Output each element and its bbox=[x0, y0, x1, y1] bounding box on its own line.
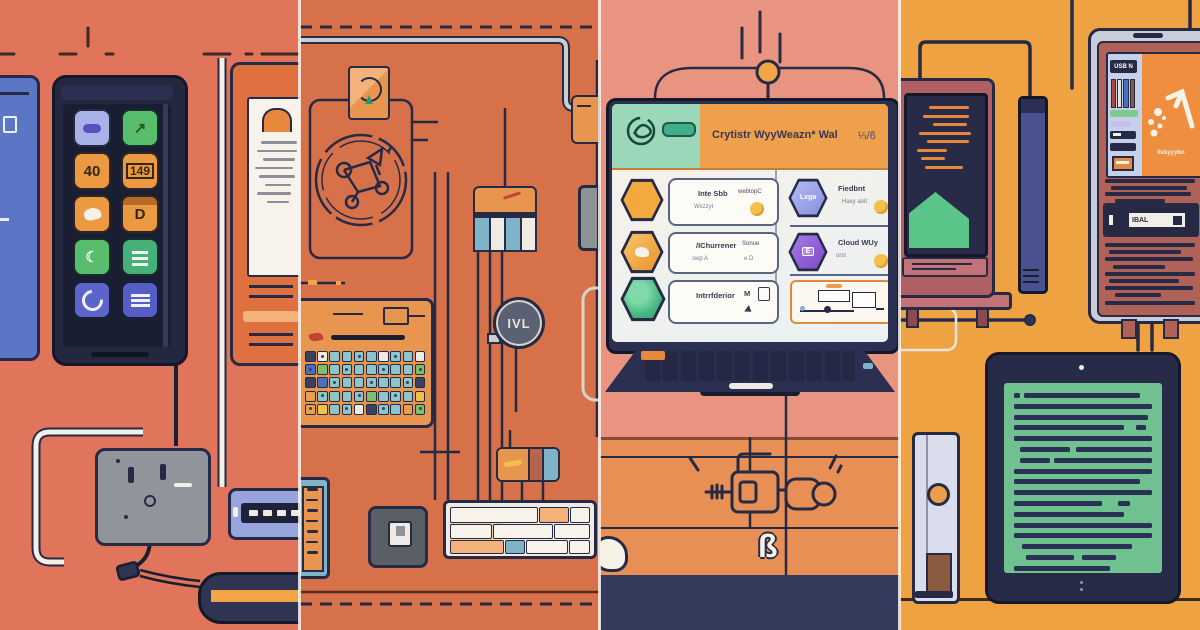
dashboard-card[interactable]: Inte Sbb Wxzzyt webtopC bbox=[668, 178, 779, 226]
edge-list-card bbox=[300, 477, 330, 579]
outlet-slot bbox=[128, 467, 134, 483]
titlebar-pill-button[interactable] bbox=[662, 122, 696, 137]
keypad-key[interactable] bbox=[403, 404, 414, 415]
e-reader-tablet bbox=[985, 352, 1181, 604]
panel-phone-desk: ↗40149D☾ bbox=[0, 0, 300, 630]
card-title: Intrrfderior bbox=[696, 291, 735, 300]
cassette-app-icon[interactable] bbox=[73, 109, 111, 147]
vent-line bbox=[249, 343, 293, 346]
panel-separator bbox=[898, 0, 901, 630]
text-line bbox=[1014, 425, 1124, 430]
keypad-key[interactable] bbox=[366, 351, 377, 362]
tablet-leg bbox=[1121, 319, 1137, 339]
text-line bbox=[1014, 523, 1152, 528]
component-body bbox=[498, 449, 528, 480]
keypad-key[interactable] bbox=[378, 351, 389, 362]
text-line bbox=[1014, 436, 1152, 441]
port bbox=[263, 510, 272, 516]
card-title: Inte Sbb bbox=[698, 189, 728, 198]
sketch-line bbox=[333, 313, 363, 315]
mini-monitor-box bbox=[368, 506, 428, 568]
card-right-label: M bbox=[744, 289, 750, 298]
phone-speaker-bar bbox=[61, 85, 173, 100]
edge-list-lines bbox=[302, 486, 324, 572]
text-line bbox=[1115, 293, 1161, 297]
screen-edge-highlight bbox=[163, 104, 168, 347]
text-line bbox=[307, 488, 318, 491]
cursor-icon bbox=[744, 305, 754, 315]
trackpad-notch bbox=[729, 383, 773, 389]
keypad-key[interactable] bbox=[403, 351, 414, 362]
text-line bbox=[1020, 458, 1050, 463]
drive-label-block bbox=[1173, 216, 1182, 225]
moon-app-icon[interactable]: ☾ bbox=[73, 238, 111, 276]
book-spine bbox=[1117, 79, 1122, 108]
text-line bbox=[1022, 544, 1132, 549]
keypad-key[interactable] bbox=[329, 364, 340, 375]
flat-keyboard bbox=[443, 500, 597, 559]
keypad-key[interactable] bbox=[366, 364, 377, 375]
schem-dot bbox=[800, 306, 805, 311]
text-line bbox=[261, 141, 297, 144]
text-line bbox=[1082, 555, 1116, 560]
text-line bbox=[306, 520, 318, 523]
keypad-key[interactable] bbox=[378, 364, 389, 375]
text-line bbox=[927, 140, 969, 143]
app-icon-glyph: ☾ bbox=[85, 250, 98, 265]
text-line bbox=[1076, 447, 1152, 452]
text-line bbox=[265, 184, 291, 187]
keypad-key[interactable] bbox=[354, 351, 365, 362]
text-line bbox=[1136, 425, 1146, 430]
text-line bbox=[1105, 301, 1195, 305]
text-line bbox=[1118, 501, 1130, 506]
text-line bbox=[257, 150, 297, 153]
book-spine bbox=[1123, 79, 1129, 108]
text-line bbox=[307, 530, 318, 533]
dashboard-card[interactable]: Intrrfderior M bbox=[668, 280, 779, 324]
hex-badge: E bbox=[802, 247, 815, 256]
edge-gray-component bbox=[578, 185, 600, 251]
text-line bbox=[1020, 447, 1070, 452]
port bbox=[249, 510, 258, 516]
power-bank bbox=[198, 572, 300, 624]
power-strip bbox=[228, 488, 300, 540]
terminal-text-lines bbox=[917, 106, 975, 186]
keypad-key[interactable] bbox=[390, 351, 401, 362]
text-line bbox=[1105, 286, 1193, 290]
sd-card-icon bbox=[1112, 156, 1134, 171]
hex-icon-orange bbox=[620, 178, 664, 222]
key bbox=[569, 540, 590, 554]
desk-monitor bbox=[230, 62, 300, 366]
document-arch-shape bbox=[262, 108, 292, 132]
panel-circuit-diagram: IVL bbox=[300, 0, 600, 630]
dove-app-icon[interactable] bbox=[73, 195, 111, 233]
card-right-sub: e D bbox=[744, 256, 753, 262]
retro-monitor-screen bbox=[904, 93, 988, 257]
schem-dash bbox=[876, 308, 884, 310]
base-line bbox=[912, 268, 956, 270]
text-line bbox=[1014, 501, 1102, 506]
menu-dash-mark bbox=[1113, 133, 1121, 136]
edge-card bbox=[571, 95, 600, 144]
tablet-main-area: Ilxkyyybo bbox=[1142, 54, 1200, 176]
antenna-doodle bbox=[655, 12, 884, 98]
text-line bbox=[1105, 179, 1195, 183]
deck-teal-chip bbox=[863, 363, 873, 369]
keypad-key[interactable] bbox=[366, 377, 377, 388]
text-line bbox=[1109, 250, 1181, 254]
keypad-key[interactable] bbox=[415, 404, 426, 415]
gray-cable bbox=[300, 40, 586, 108]
progress-strip bbox=[1110, 110, 1138, 117]
page-text-lines bbox=[1014, 393, 1152, 563]
memo-app-icon[interactable] bbox=[121, 238, 159, 276]
keypad-key[interactable] bbox=[415, 351, 426, 362]
text-line bbox=[921, 157, 945, 160]
component-cap bbox=[542, 449, 558, 480]
text-line bbox=[255, 167, 293, 170]
keypad-key[interactable] bbox=[403, 364, 414, 375]
app-icon-glyph: D bbox=[135, 207, 146, 222]
key bbox=[554, 524, 590, 539]
docked-tablet: Ilxkyyybo USB N IBAL bbox=[1088, 28, 1200, 324]
d-app-icon[interactable]: D bbox=[121, 195, 159, 233]
menu-dash[interactable] bbox=[1110, 143, 1136, 151]
route-app-icon[interactable]: ↗ bbox=[121, 109, 159, 147]
sketch-thick-line bbox=[331, 335, 405, 340]
text-line bbox=[1014, 512, 1124, 517]
app-title-meta: ⅓/ϐ bbox=[857, 130, 876, 142]
keypad-key[interactable] bbox=[354, 364, 365, 375]
cabinet-seam bbox=[0, 92, 29, 95]
stylus-groove bbox=[1023, 275, 1039, 277]
framed-chip-card bbox=[348, 66, 390, 120]
text-line bbox=[1014, 479, 1140, 484]
usb-badge: USB N bbox=[1110, 60, 1137, 73]
keypad-key[interactable] bbox=[415, 391, 426, 402]
book-spine bbox=[1111, 79, 1116, 108]
key bbox=[493, 524, 553, 539]
stylus-pen bbox=[1018, 96, 1048, 294]
tablet-body: Ilxkyyybo USB N IBAL bbox=[1097, 41, 1200, 317]
card-subtitle: orst bbox=[836, 253, 846, 259]
front-panel-strip bbox=[600, 575, 900, 630]
keypad-keys bbox=[305, 351, 427, 419]
drive-bay: IBAL bbox=[1103, 203, 1199, 237]
keypad-key[interactable] bbox=[354, 391, 365, 402]
card-subtitle: Wxzzyt bbox=[694, 204, 713, 210]
adapter-screw bbox=[116, 459, 120, 463]
scatter-logo bbox=[1142, 54, 1200, 176]
keypad-key[interactable] bbox=[342, 377, 353, 388]
gauge-40-app-icon[interactable]: 40 bbox=[73, 152, 111, 190]
document-text-lines bbox=[255, 141, 297, 261]
text-line bbox=[1014, 490, 1152, 495]
desk-monitor-screen bbox=[247, 97, 300, 277]
home-dot bbox=[1080, 588, 1083, 591]
power-adapter bbox=[95, 448, 211, 546]
list-app-icon[interactable] bbox=[121, 281, 159, 319]
tablet-logo-text: Ilxkyyybo bbox=[1142, 150, 1200, 156]
keypad-key[interactable] bbox=[366, 404, 377, 415]
text-line bbox=[929, 106, 969, 109]
sketch-line bbox=[409, 315, 425, 317]
keypad-key[interactable] bbox=[317, 377, 328, 388]
keypad-key[interactable] bbox=[317, 404, 328, 415]
keypad-key[interactable] bbox=[390, 377, 401, 388]
component-scribble bbox=[504, 460, 523, 467]
text-line bbox=[1014, 533, 1152, 538]
schematic-card[interactable] bbox=[790, 280, 888, 324]
phone-screen: ↗40149D☾ bbox=[63, 104, 171, 347]
tablet-speaker bbox=[1133, 33, 1163, 38]
keypad-key[interactable] bbox=[329, 391, 340, 402]
key bbox=[450, 524, 492, 539]
vent-bars bbox=[1105, 243, 1200, 309]
panel-separator bbox=[298, 0, 301, 630]
keypad-key[interactable] bbox=[378, 404, 389, 415]
monitor-base-bar bbox=[243, 311, 299, 322]
cabinet-dash bbox=[0, 218, 9, 221]
text-line bbox=[306, 499, 318, 502]
text-line bbox=[1026, 555, 1074, 560]
keypad-key[interactable] bbox=[354, 404, 365, 415]
keypad-key[interactable] bbox=[305, 404, 316, 415]
key bbox=[570, 507, 590, 523]
mini-monitor-screen bbox=[388, 521, 412, 547]
dashed-guides bbox=[0, 28, 300, 54]
adapter-label bbox=[174, 483, 192, 487]
phone-home-groove bbox=[91, 352, 149, 357]
card-title: /IChurrener bbox=[696, 241, 736, 250]
key bbox=[539, 507, 569, 523]
text-line bbox=[263, 158, 295, 161]
card-subtitle: swp A bbox=[692, 256, 708, 262]
chip-mark bbox=[503, 191, 521, 199]
text-line bbox=[1014, 404, 1152, 409]
adapter-screw bbox=[124, 515, 128, 519]
keypad-key[interactable] bbox=[366, 391, 377, 402]
dock-brown-block bbox=[926, 553, 952, 595]
keypad-key[interactable] bbox=[342, 404, 353, 415]
keypad-key[interactable] bbox=[305, 364, 316, 375]
hex-icon-bird bbox=[620, 230, 664, 274]
tablet-screen: Ilxkyyybo USB N bbox=[1106, 52, 1200, 178]
schem-block bbox=[818, 290, 850, 302]
keypad-key[interactable] bbox=[390, 364, 401, 375]
row-divider bbox=[790, 225, 888, 227]
base-line bbox=[912, 263, 972, 265]
schem-tab bbox=[826, 284, 842, 288]
keypad-key[interactable] bbox=[305, 391, 316, 402]
hex-icon-green-cube bbox=[620, 276, 666, 322]
keypad-key[interactable] bbox=[342, 351, 353, 362]
key bbox=[505, 540, 525, 554]
keypad-key[interactable] bbox=[329, 351, 340, 362]
vent-line bbox=[249, 333, 293, 336]
deck-orange-chip bbox=[641, 351, 665, 360]
text-line bbox=[1113, 265, 1165, 269]
keypad-key[interactable] bbox=[342, 391, 353, 402]
card-right-label: Sonue bbox=[742, 241, 759, 247]
vent-line bbox=[249, 295, 293, 298]
laptop-screen: Crytistr WyyWeazn* Wal ⅓/ϐ Inte Sbb Wxzz… bbox=[612, 104, 888, 342]
app-icon-glyph: 149 bbox=[126, 163, 154, 179]
text-line bbox=[923, 115, 969, 118]
keypad-key[interactable] bbox=[354, 377, 365, 388]
text-line bbox=[925, 166, 963, 169]
connector-chip-top bbox=[473, 186, 537, 214]
keypad-key[interactable] bbox=[317, 364, 328, 375]
key bbox=[450, 507, 538, 523]
tablet-leg bbox=[1163, 319, 1179, 339]
text-line bbox=[917, 149, 947, 152]
status-dot bbox=[750, 202, 764, 216]
dock-foot bbox=[915, 591, 953, 598]
home-dot bbox=[1080, 581, 1083, 584]
text-line bbox=[1105, 192, 1191, 196]
keypad-key[interactable] bbox=[305, 377, 316, 388]
number-149-app-icon[interactable]: 149 bbox=[121, 152, 159, 190]
menu-dash[interactable] bbox=[1110, 131, 1136, 139]
keypad-key[interactable] bbox=[390, 391, 401, 402]
retro-monitor bbox=[900, 78, 995, 298]
cable-connector-bead bbox=[117, 562, 140, 580]
panel-separator bbox=[598, 0, 601, 630]
dock-button[interactable] bbox=[927, 483, 950, 506]
leaf-mark bbox=[365, 95, 373, 104]
text-line bbox=[1105, 272, 1195, 276]
app-icon-glyph: ↗ bbox=[134, 121, 147, 136]
key bbox=[526, 540, 568, 554]
status-dot bbox=[874, 254, 888, 268]
edge-card-line bbox=[577, 105, 591, 107]
sd-card-label bbox=[1116, 161, 1129, 164]
row-divider bbox=[790, 274, 888, 276]
keypad-key[interactable] bbox=[329, 404, 340, 415]
schem-slider-knob[interactable] bbox=[824, 306, 831, 313]
text-line bbox=[257, 192, 291, 195]
cable-bead bbox=[1025, 315, 1035, 325]
power-bank-stripe bbox=[211, 590, 300, 602]
text-line bbox=[919, 132, 971, 135]
component-band bbox=[528, 449, 542, 480]
keypad-key[interactable] bbox=[378, 391, 389, 402]
bird-mark bbox=[635, 247, 649, 257]
text-line bbox=[306, 541, 318, 544]
keypad-key[interactable] bbox=[403, 391, 414, 402]
text-line bbox=[1105, 243, 1195, 247]
outlet-slot bbox=[160, 464, 166, 480]
power-strip-ports bbox=[241, 503, 300, 523]
text-line bbox=[1014, 393, 1020, 398]
keypad-key[interactable] bbox=[305, 351, 316, 362]
molecule-doodle bbox=[316, 135, 406, 225]
connector-chip-pins bbox=[473, 214, 537, 252]
dashboard-card[interactable]: /IChurrener swp A Sonue e D bbox=[668, 232, 779, 274]
keypad-key[interactable] bbox=[317, 391, 328, 402]
card-subtitle: Haxy aoit bbox=[842, 199, 867, 205]
keypad-key[interactable] bbox=[329, 377, 340, 388]
port bbox=[277, 510, 286, 516]
text-line bbox=[307, 551, 318, 554]
stylus-cap bbox=[1021, 99, 1045, 113]
swirl-app-icon[interactable] bbox=[73, 281, 111, 319]
panel-workstation: Ilxkyyybo USB N IBAL bbox=[900, 0, 1200, 630]
keypad-key[interactable] bbox=[378, 377, 389, 388]
sketch-scribble bbox=[308, 332, 323, 343]
adapter-ground-hole bbox=[144, 495, 156, 507]
phone-app-grid: ↗40149D☾ bbox=[63, 104, 171, 347]
keypad-key[interactable] bbox=[415, 364, 426, 375]
laptop-keyboard-deck bbox=[605, 345, 895, 392]
text-line bbox=[1024, 393, 1140, 398]
brand-swirl-icon bbox=[624, 114, 664, 154]
sketch-box bbox=[383, 307, 409, 325]
text-line bbox=[267, 201, 289, 204]
round-module: IVL bbox=[493, 297, 545, 349]
text-line bbox=[259, 175, 295, 178]
vent-bars bbox=[1105, 179, 1200, 201]
text-line bbox=[1054, 458, 1152, 463]
lavender-dash bbox=[1111, 121, 1131, 127]
orange-tick bbox=[336, 281, 341, 285]
stylus-groove bbox=[1023, 281, 1039, 283]
keypad-key[interactable] bbox=[390, 404, 401, 415]
text-line bbox=[1014, 469, 1152, 474]
smartphone: ↗40149D☾ bbox=[52, 75, 188, 366]
app-title: Crytistr WyyWeazn* Wal bbox=[712, 129, 838, 141]
keypad-key[interactable] bbox=[317, 351, 328, 362]
schem-block bbox=[852, 292, 876, 308]
text-line bbox=[1014, 415, 1148, 420]
vent-line bbox=[249, 285, 293, 288]
keypad-key[interactable] bbox=[342, 364, 353, 375]
antenna-node bbox=[757, 61, 779, 83]
text-line bbox=[1014, 566, 1110, 571]
hex-icon-purple: E bbox=[788, 232, 828, 272]
blue-cabinet-device bbox=[0, 75, 40, 361]
card-title: Fiedbnt bbox=[838, 184, 865, 193]
file-icon bbox=[758, 287, 770, 301]
text-line bbox=[1115, 199, 1165, 203]
laptop-hinge bbox=[700, 392, 800, 396]
round-module-label: IVL bbox=[507, 316, 530, 331]
e-reader-screen bbox=[1004, 383, 1162, 573]
inline-component bbox=[496, 447, 560, 482]
text-line bbox=[1105, 257, 1193, 261]
connector-chip bbox=[473, 186, 537, 252]
strip-switch bbox=[233, 507, 238, 517]
chart-mountain bbox=[909, 192, 969, 248]
hex-icon-periwinkle: Lxga bbox=[788, 178, 828, 218]
plug-doodle bbox=[690, 454, 841, 512]
monitor-base bbox=[902, 257, 988, 277]
white-dock-device bbox=[912, 432, 960, 604]
status-dot bbox=[874, 200, 888, 214]
keypad-key[interactable] bbox=[403, 377, 414, 388]
hex-label: Lxga bbox=[800, 194, 816, 201]
drive-label-text: IBAL bbox=[1132, 217, 1148, 224]
card-title: Cloud WUy bbox=[838, 238, 878, 247]
keypad-key[interactable] bbox=[415, 377, 426, 388]
keyboard-keys-texture bbox=[645, 351, 855, 381]
text-line bbox=[1111, 186, 1187, 190]
orange-tick bbox=[308, 280, 317, 285]
illustration-stage: ↗40149D☾ bbox=[0, 0, 1200, 630]
